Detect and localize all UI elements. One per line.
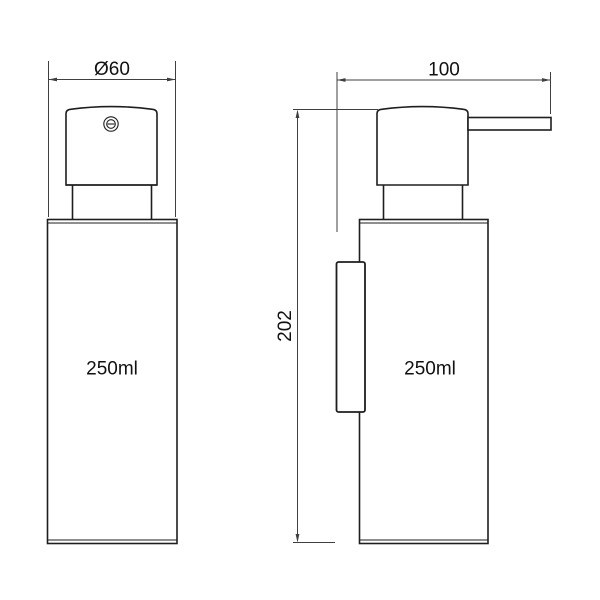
- height-dimension-label: 202: [275, 310, 296, 342]
- capacity-label-front: 250ml: [86, 359, 138, 380]
- arrowhead-top: [296, 110, 300, 119]
- pump-head-front: [66, 107, 157, 185]
- technical-drawing: 250ml Ø60 25: [0, 0, 600, 600]
- arrowhead-left: [337, 78, 346, 82]
- depth-dimension-label: 100: [428, 60, 460, 81]
- arrowhead-left: [49, 78, 58, 82]
- arrowhead-right: [542, 78, 551, 82]
- spout: [468, 118, 551, 131]
- bottle-body-front: [48, 220, 178, 544]
- diameter-dimension-label: Ø60: [94, 59, 130, 80]
- pump-collar-front: [66, 185, 157, 219]
- arrowhead-right: [167, 78, 176, 82]
- arrowhead-bottom: [296, 534, 300, 543]
- pump-head-side: [377, 107, 468, 185]
- front-view: 250ml: [48, 107, 178, 544]
- pump-collar-side: [384, 185, 463, 219]
- wall-bracket: [337, 262, 366, 412]
- capacity-label-side: 250ml: [404, 359, 456, 380]
- bottle-body-side: [360, 220, 489, 544]
- side-view: 250ml: [337, 107, 552, 544]
- drawing-canvas: 250ml Ø60 25: [0, 0, 600, 600]
